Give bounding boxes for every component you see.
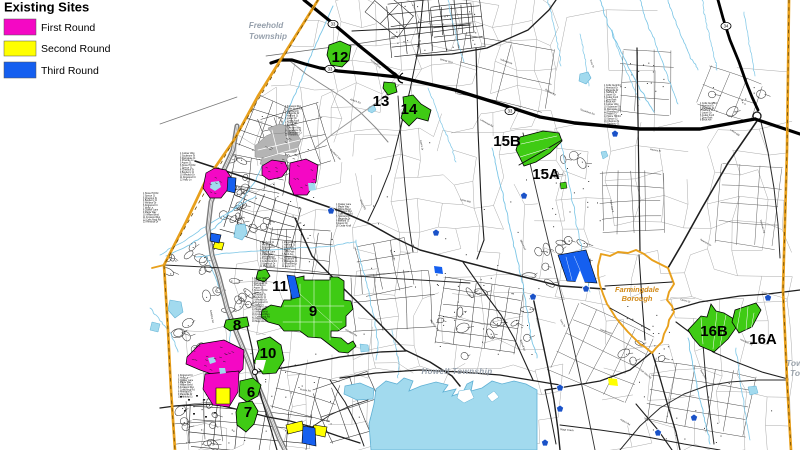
svg-text:First Round: First Round [41,22,95,34]
svg-text:10 Cedar Knoll: 10 Cedar Knoll [336,225,352,228]
svg-text:11 Aspen Ct: 11 Aspen Ct [282,265,295,268]
svg-text:34: 34 [724,24,729,29]
svg-text:Howell Township: Howell Township [421,367,492,376]
svg-text:8 Birch Ave: 8 Birch Ave [700,119,712,122]
svg-text:11: 11 [272,278,288,295]
svg-text:33: 33 [508,109,513,114]
svg-text:Existing Sites: Existing Sites [4,0,89,15]
svg-text:15A: 15A [532,166,560,183]
svg-text:13 Hemlock Dr: 13 Hemlock Dr [143,221,158,224]
svg-text:33: 33 [328,67,333,72]
svg-text:14: 14 [401,101,418,118]
svg-text:16A: 16A [749,331,777,348]
svg-text:Township: Township [249,32,287,41]
svg-text:9: 9 [309,303,317,320]
svg-text:17 Bayberry Ct: 17 Bayberry Ct [604,122,620,125]
svg-text:Farmingdale: Farmingdale [615,285,659,294]
svg-text:13 Pinetree Ln: 13 Pinetree Ln [285,134,301,137]
svg-text:15B: 15B [493,133,521,150]
svg-text:19 Magnolia Dr: 19 Magnolia Dr [252,320,268,323]
svg-text:10 Hartford Ct: 10 Hartford Ct [178,396,193,399]
svg-text:Tow: Tow [786,358,800,368]
svg-text:12: 12 [332,49,349,66]
svg-text:33: 33 [331,22,336,27]
svg-text:10: 10 [260,345,277,362]
svg-text:12 Holly Ln: 12 Holly Ln [180,179,192,181]
svg-text:16B: 16B [700,323,728,340]
svg-text:Third Round: Third Round [41,65,99,77]
svg-text:Town: Town [790,368,800,378]
svg-text:6: 6 [247,384,255,401]
svg-text:Second Round: Second Round [41,43,111,55]
svg-text:Borough: Borough [622,294,653,303]
svg-text:7: 7 [244,404,252,421]
svg-text:11 Magnolia Dr: 11 Magnolia Dr [260,265,276,268]
svg-text:Freehold: Freehold [249,21,285,30]
svg-text:8: 8 [233,317,241,334]
svg-text:13: 13 [373,93,390,110]
